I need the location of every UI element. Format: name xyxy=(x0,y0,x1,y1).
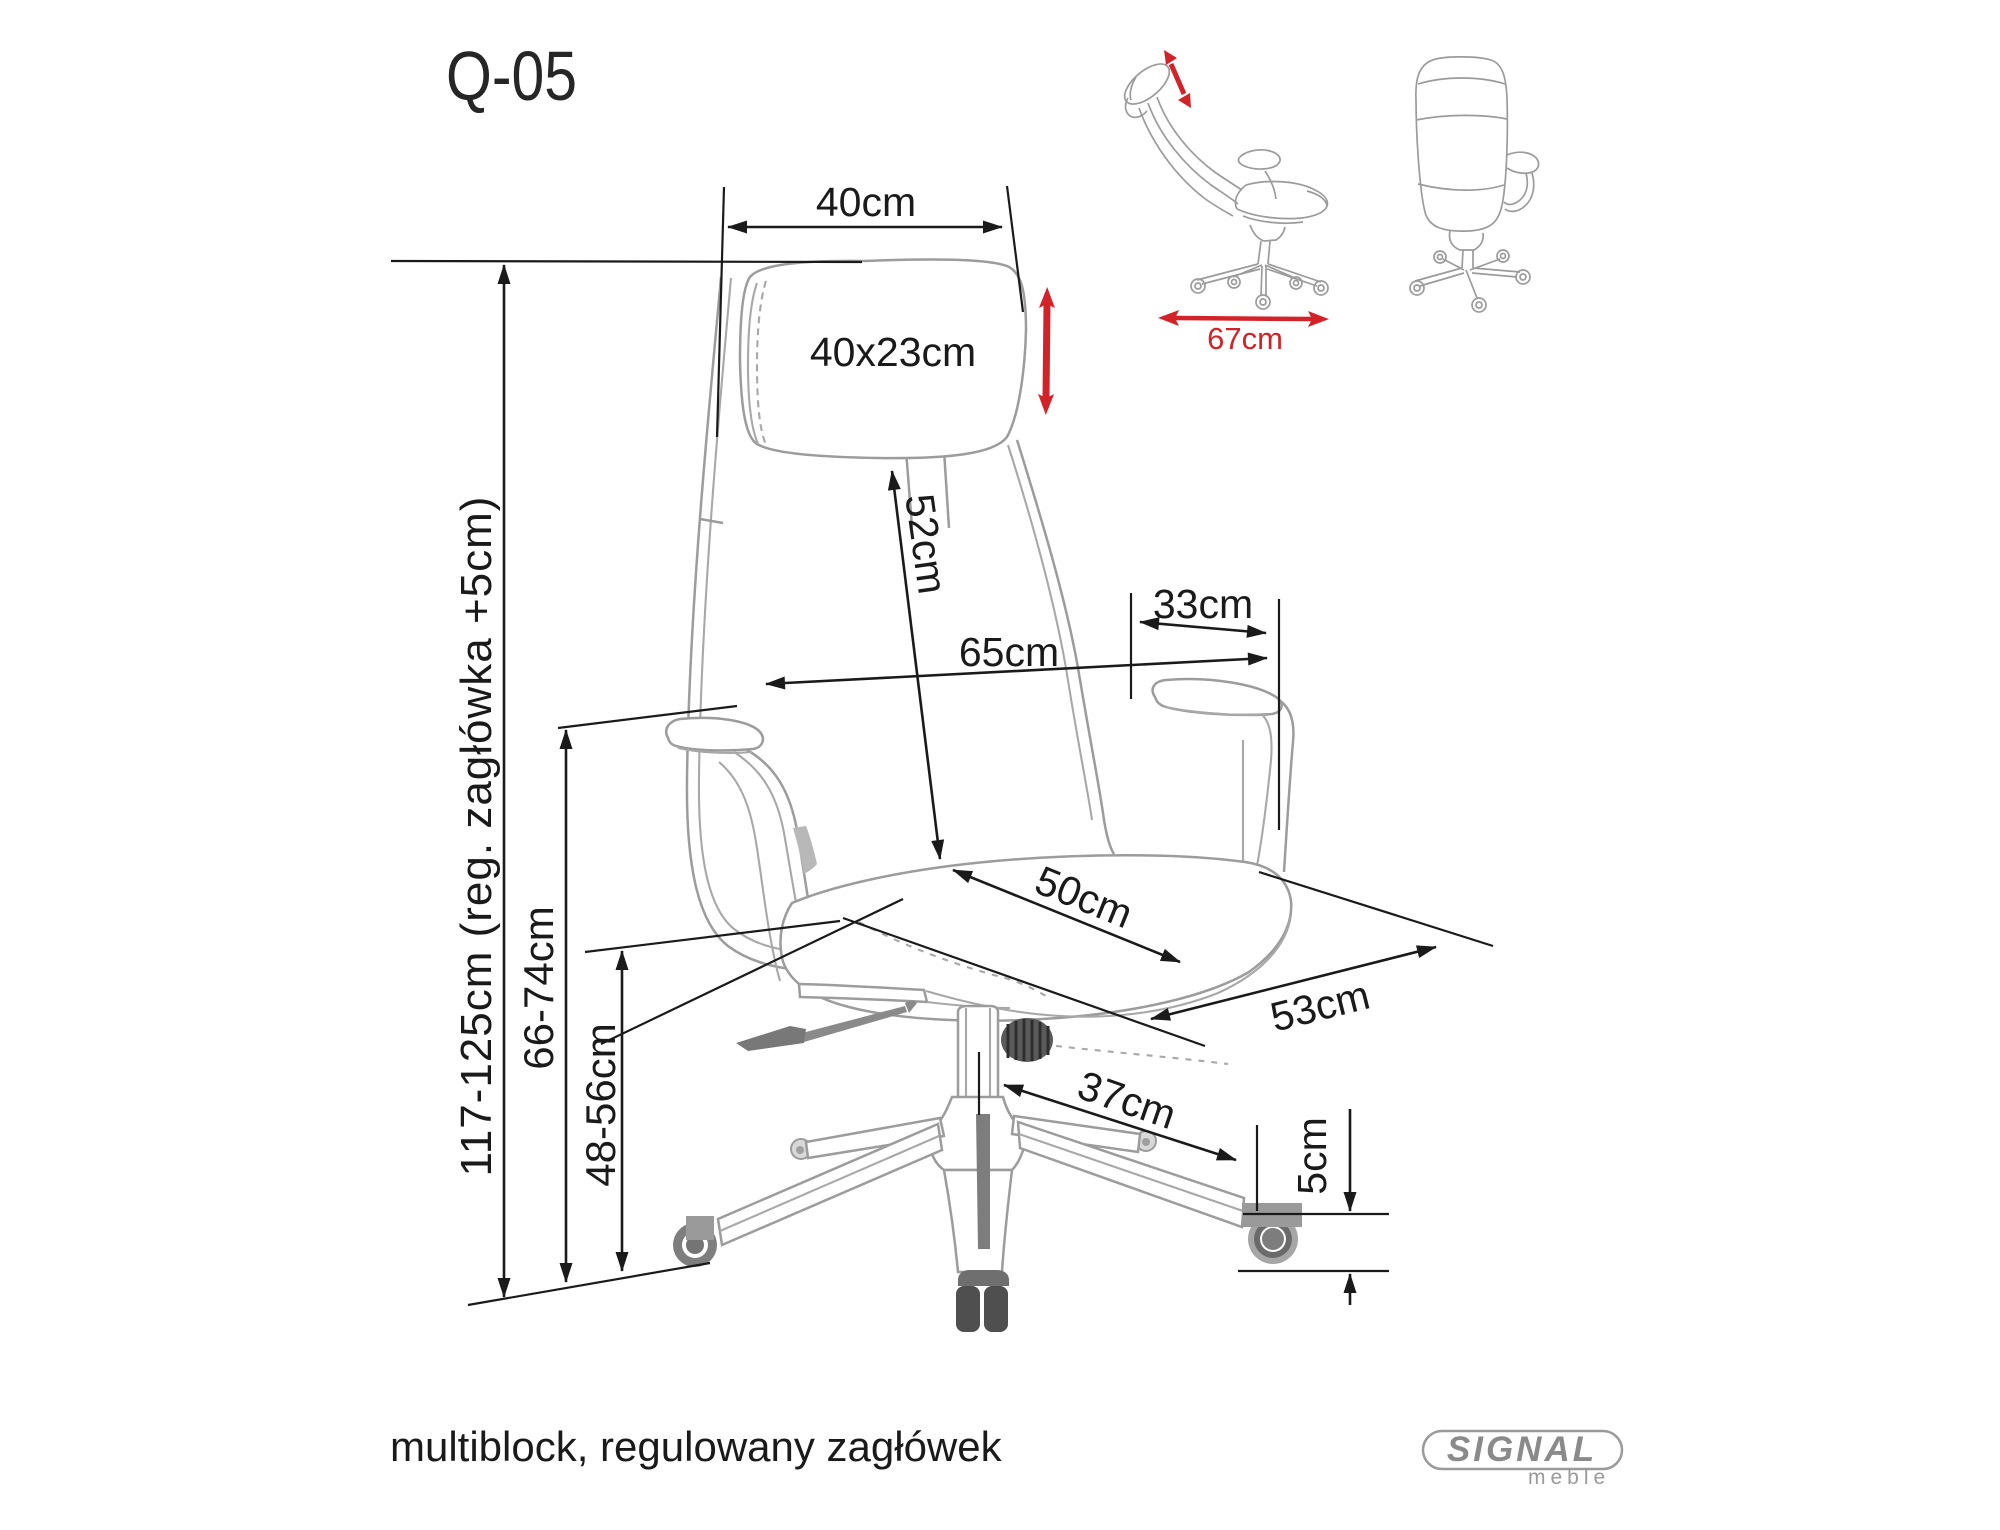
svg-text:meble: meble xyxy=(1528,1466,1610,1489)
svg-text:66-74cm: 66-74cm xyxy=(515,906,562,1069)
svg-text:40x23cm: 40x23cm xyxy=(810,329,976,375)
svg-text:40cm: 40cm xyxy=(816,179,916,225)
svg-text:67cm: 67cm xyxy=(1207,321,1283,356)
svg-text:65cm: 65cm xyxy=(959,629,1059,675)
svg-text:117-125cm (reg. zagłówka +5cm): 117-125cm (reg. zagłówka +5cm) xyxy=(452,496,501,1177)
svg-text:Q-05: Q-05 xyxy=(446,37,577,115)
svg-text:multiblock, regulowany zagłówe: multiblock, regulowany zagłówek xyxy=(390,1423,1003,1470)
svg-text:33cm: 33cm xyxy=(1153,581,1253,627)
svg-text:5cm: 5cm xyxy=(1289,1117,1335,1194)
svg-text:SIGNAL: SIGNAL xyxy=(1447,1430,1597,1469)
svg-text:48-56cm: 48-56cm xyxy=(577,1023,624,1186)
